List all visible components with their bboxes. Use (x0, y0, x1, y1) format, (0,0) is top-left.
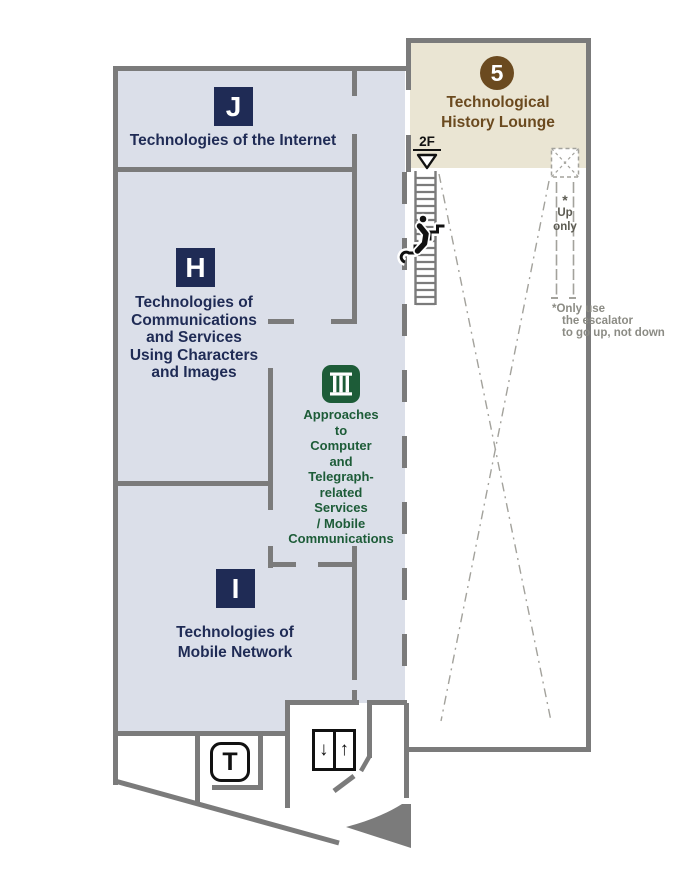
zone-J-letter: J (226, 91, 242, 123)
asterisk-mark: * (550, 194, 580, 206)
escalator-landing-icon (552, 149, 579, 178)
lounge-name: Technological History Lounge (408, 93, 588, 133)
curved-wall-wedge (346, 804, 411, 848)
zone-III-name: Approaches to Computer and Telegraph- re… (271, 407, 411, 547)
elevator-icon: ↓ ↑ (312, 729, 356, 771)
elevator-down-arrow-icon: ↓ (315, 732, 333, 768)
up-only-text: Up only (550, 206, 580, 234)
toilet-letter: T (222, 748, 237, 777)
floor-map: J Technologies of the Internet H Technol… (0, 0, 680, 893)
zone-I-name: Technologies of Mobile Network (135, 623, 335, 662)
toilet-icon: T (210, 742, 250, 782)
floor-marker-2F: 2F (413, 134, 441, 151)
escalator-footnote: *Only use the escalator to go up, not do… (552, 303, 680, 339)
elevator-up-arrow-icon: ↑ (333, 732, 354, 768)
zone-J-badge: J (214, 87, 253, 126)
escalator-direction-label: * Up only (550, 194, 580, 234)
floor-down-triangle-icon (418, 155, 436, 168)
void-cross-lines (439, 174, 551, 721)
zone-J-name: Technologies of the Internet (111, 132, 355, 150)
zone-H-letter: H (185, 252, 205, 284)
lounge-number: 5 (491, 60, 504, 87)
zone-I-letter: I (232, 573, 240, 605)
zone-III-badge: III (322, 365, 360, 403)
zone-H-badge: H (176, 248, 215, 287)
zone-H-name: Technologies of Communications and Servi… (94, 294, 294, 382)
zone-I-badge: I (216, 569, 255, 608)
roman-three-icon (327, 370, 355, 398)
lounge-number-badge: 5 (480, 56, 514, 90)
